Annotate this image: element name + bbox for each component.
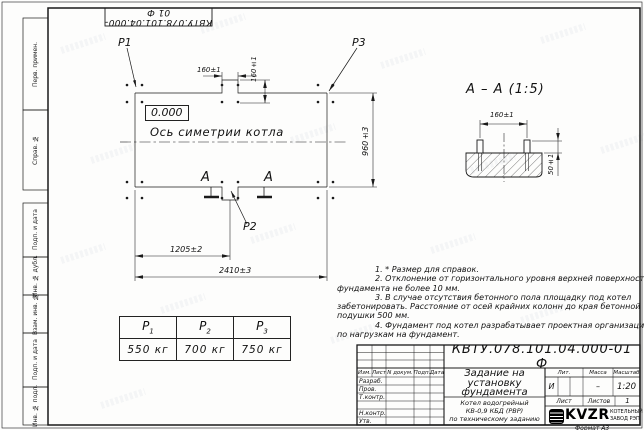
load-value-p2: 700 кг xyxy=(177,339,234,361)
note-line: 1. * Размер для справок. xyxy=(337,265,637,274)
note-line: фундамента не более 10 мм. xyxy=(337,284,637,293)
kvzr-logo: KVZR КОТЕЛЬНЫЙ ЗАВОД РЭП xyxy=(546,406,640,425)
load-col-p3: P3 xyxy=(234,317,291,339)
note-line: забетонировать. Расстояние от осей крайн… xyxy=(337,302,637,311)
load-point-p3-label: P3 xyxy=(352,36,366,49)
title-line: фундамента xyxy=(444,388,545,398)
col-podp: Подп. xyxy=(414,368,430,377)
format-label: Формат А3 xyxy=(575,425,609,430)
loads-table: P1 P2 P3 550 кг 700 кг 750 кг xyxy=(119,316,291,361)
title-block-product: Котел водогрейный КВ-0,9 КБД (РВР) по те… xyxy=(444,399,545,423)
col-dokum: N докум. xyxy=(386,368,414,377)
product-line: Котел водогрейный xyxy=(444,399,545,407)
col-list: Лист xyxy=(372,368,386,377)
masshtab-label: Масштаб xyxy=(613,368,640,377)
load-value-p1: 550 кг xyxy=(120,339,177,361)
col-data: Дата xyxy=(430,368,444,377)
strip-perv-primen: Перв. примен. xyxy=(23,18,48,110)
row-utv: Утв. xyxy=(359,418,372,425)
masshtab-value: 1:20 xyxy=(613,377,640,396)
note-line: по нагрузкам на фундамент. xyxy=(337,330,637,339)
boiler-symmetry-axis-label: Ось симетрии котла xyxy=(150,125,284,139)
note-line: подушки 500 мм. xyxy=(337,311,637,320)
listov-label: Листов xyxy=(583,396,615,406)
strip-inv-dubl: Инв. № дубл. xyxy=(23,257,48,295)
anchor-bolt-points xyxy=(126,84,335,200)
strip-vzam-inv: Взам. инв. № xyxy=(23,295,48,333)
load-col-p1: P1 xyxy=(120,317,177,339)
note-line: 3. В случае отсутствия бетонного пола пл… xyxy=(337,293,637,302)
notes-block: 1. * Размер для справок. 2. Отклонение о… xyxy=(337,265,637,339)
title-block-title: Задание на установку фундамента xyxy=(444,369,545,398)
section-title: А – А (1:5) xyxy=(466,82,545,97)
listov-value: 1 xyxy=(615,396,640,406)
drawing-sheet: Перв. примен. Справ. № Подп. и дата Инв.… xyxy=(0,0,644,430)
massa-label: Масса xyxy=(583,368,613,377)
dim-160-vert: 160±1 xyxy=(249,56,259,82)
dim-2410: 2410±3 xyxy=(219,266,251,275)
load-value-p3: 750 кг xyxy=(234,339,291,361)
load-col-p2: P2 xyxy=(177,317,234,339)
col-izm: Изм. xyxy=(357,368,372,377)
doc-number-rotated: КВТУ.078.101.04.000-01 Ф xyxy=(105,8,212,26)
lit-label: Лит. xyxy=(545,368,583,377)
kvzr-logo-text: KVZR xyxy=(565,407,610,423)
dim-960: 960±3 xyxy=(360,124,371,158)
row-razrab: Разраб. xyxy=(359,378,383,385)
strip-sprav-no: Справ. № xyxy=(23,110,48,190)
load-point-p2-label: P2 xyxy=(243,220,257,233)
section-dim-160: 160±1 xyxy=(490,111,514,119)
product-line: КВ-0,9 КБД (РВР) xyxy=(444,407,545,415)
list-label: Лист xyxy=(545,396,583,406)
row-nkontr: Н.контр. xyxy=(359,410,386,417)
strip-podp-data-2: Подп. и дата xyxy=(23,333,48,387)
product-line: по техническому заданию xyxy=(444,415,545,423)
kvzr-logo-sub1: КОТЕЛЬНЫЙ xyxy=(610,409,643,415)
note-line: 4. Фундамент под котел разрабатывает про… xyxy=(337,321,637,330)
load-point-p1-label: P1 xyxy=(118,36,132,49)
elevation-mark: 0.000 xyxy=(145,105,189,121)
section-letter-left: А xyxy=(201,170,210,185)
title-block-doc-number: КВТУ.078.101.04.000-01 Ф xyxy=(444,345,640,368)
section-letter-right: А xyxy=(264,170,273,185)
strip-podp-data-1: Подп. и дата xyxy=(23,203,48,257)
dim-1205: 1205±2 xyxy=(170,245,202,254)
note-line: 2. Отклонение от горизонтального уровня … xyxy=(337,274,637,283)
dim-160-top: 160±1 xyxy=(197,66,221,74)
loads-header-row: P1 P2 P3 xyxy=(120,317,291,339)
section-dim-50: 50±1 xyxy=(546,152,556,176)
kvzr-logo-emblem-icon xyxy=(549,409,564,424)
massa-value: – xyxy=(583,377,613,396)
row-prov: Пров. xyxy=(359,386,376,393)
lit-value: И xyxy=(545,377,558,396)
loads-value-row: 550 кг 700 кг 750 кг xyxy=(120,339,291,361)
strip-inv-podl: Инв. № подл. xyxy=(23,387,48,425)
row-tkontr: Т.контр. xyxy=(359,394,385,401)
kvzr-logo-sub2: ЗАВОД РЭП xyxy=(610,416,640,422)
